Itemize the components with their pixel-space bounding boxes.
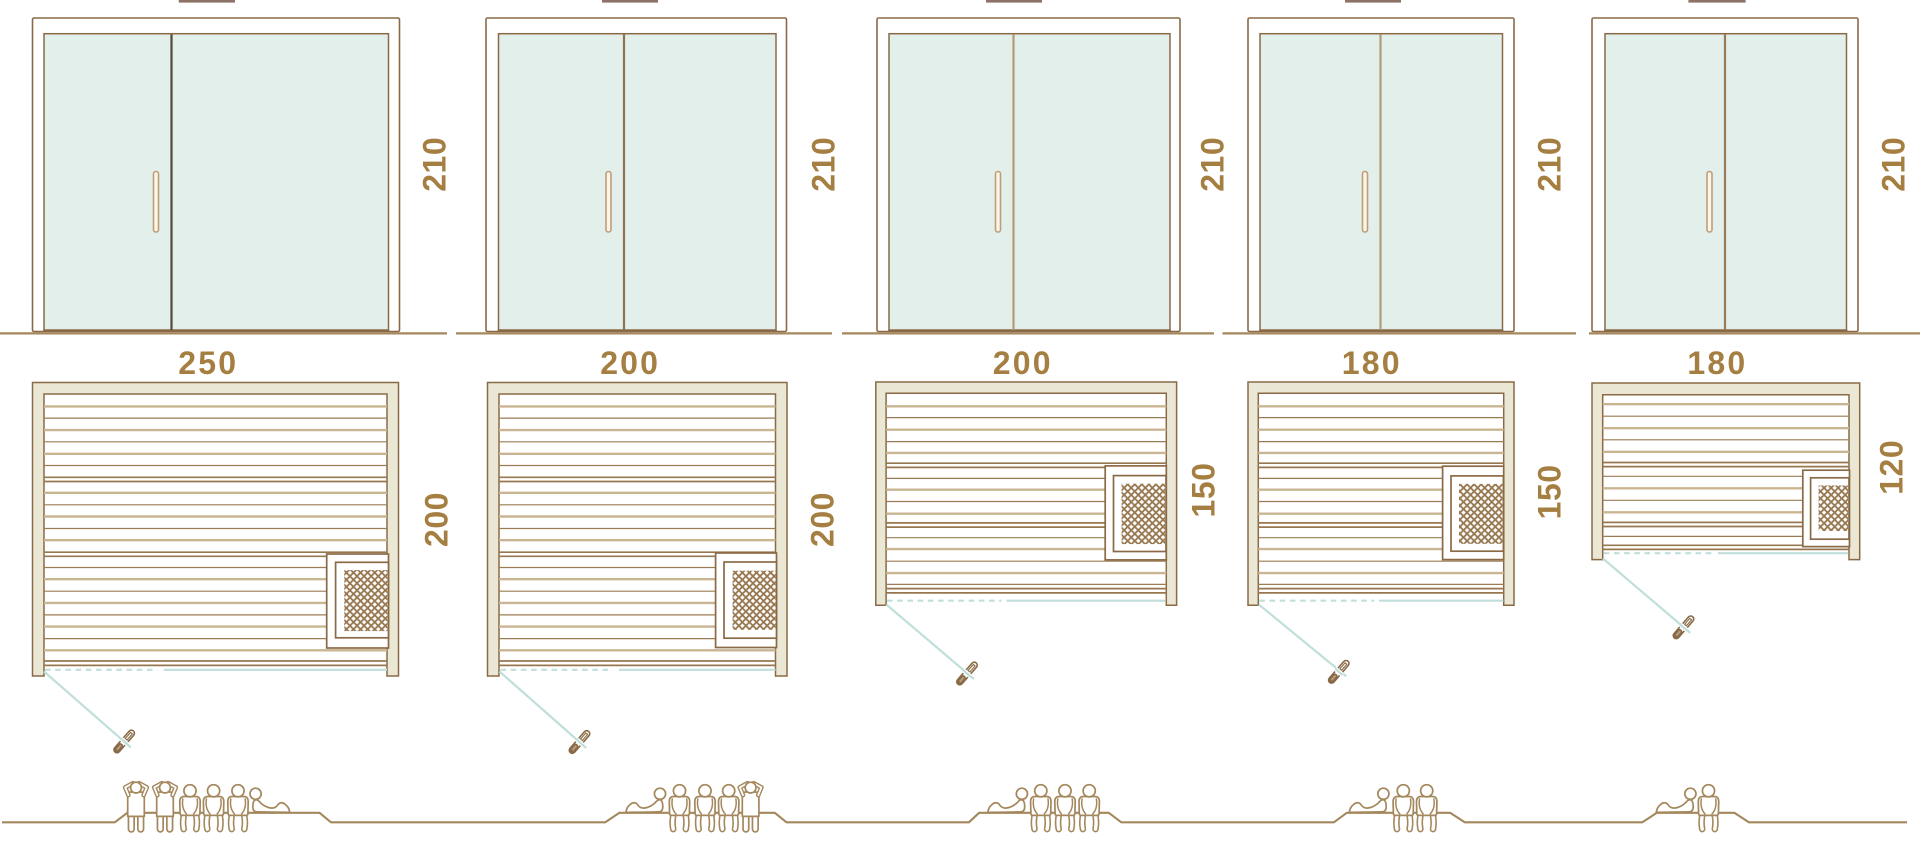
svg-text:150: 150	[1531, 464, 1567, 519]
svg-text:210: 210	[806, 137, 842, 192]
svg-text:210: 210	[417, 137, 453, 192]
svg-text:150: 150	[1186, 463, 1222, 518]
svg-text:200: 200	[993, 345, 1053, 381]
svg-text:180: 180	[1342, 345, 1402, 381]
svg-text:200: 200	[600, 345, 660, 381]
svg-text:210: 210	[1876, 137, 1912, 192]
svg-text:120: 120	[1873, 440, 1909, 495]
svg-text:200: 200	[805, 492, 841, 547]
svg-text:210: 210	[1532, 137, 1568, 192]
svg-text:180: 180	[1687, 345, 1747, 381]
svg-text:210: 210	[1195, 137, 1231, 192]
svg-text:200: 200	[419, 492, 455, 547]
svg-text:250: 250	[178, 345, 238, 381]
